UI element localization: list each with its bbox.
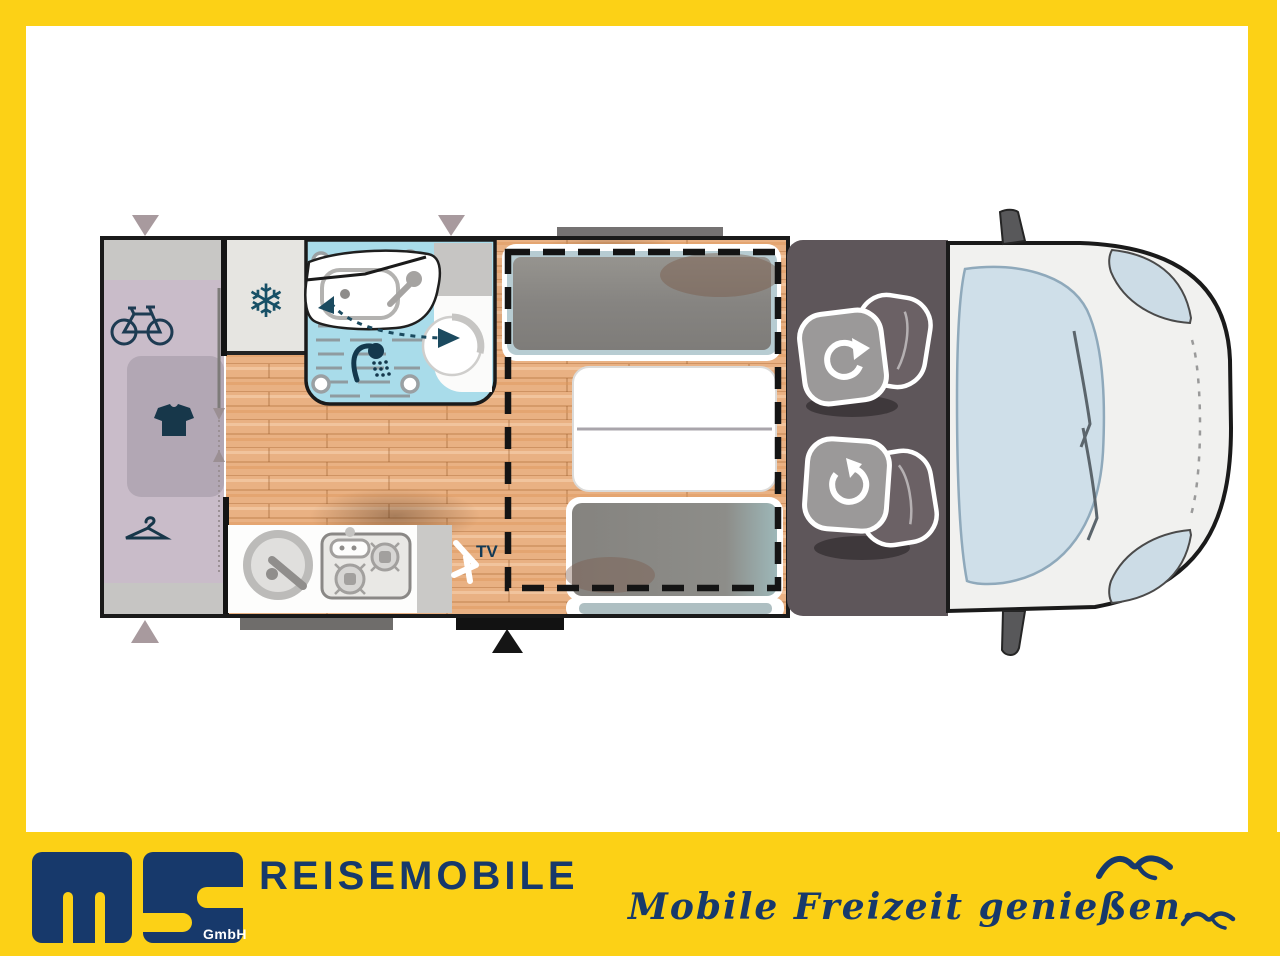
logo-shape	[197, 887, 243, 908]
seagull-icon-large	[1095, 848, 1175, 890]
mirror-icon	[1002, 611, 1025, 655]
bench-seat-front	[502, 244, 781, 361]
logo-shape	[63, 892, 73, 943]
bathroom	[305, 240, 495, 404]
kitchen-step	[240, 616, 393, 630]
vehicle-front	[948, 210, 1231, 655]
fridge: ❄	[227, 240, 306, 355]
rear-garage	[104, 240, 229, 615]
seagull-icon-small	[1180, 906, 1236, 936]
motorhome-floorplan: ❄	[0, 0, 1280, 959]
toilet-icon	[423, 317, 481, 375]
company-title: REISEMOBILE	[259, 856, 579, 896]
logo-gmbh-label: GmbH	[203, 926, 247, 942]
garage-wall-top	[221, 240, 227, 356]
bathroom-cabinet	[434, 243, 492, 296]
tv-label: TV	[476, 542, 498, 561]
sink-icon	[305, 251, 440, 329]
logo-shape	[95, 892, 105, 943]
logo-shape	[143, 913, 192, 932]
kitchen-sink-icon	[247, 534, 309, 596]
kitchen	[228, 525, 452, 613]
page: ❄	[0, 0, 1280, 959]
mirror-icon	[1000, 210, 1025, 244]
snowflake-icon: ❄	[247, 274, 286, 328]
dinette-table	[573, 367, 776, 491]
stove-icon	[322, 527, 410, 598]
cab	[787, 240, 948, 616]
entry-step	[456, 616, 564, 630]
slogan-script: Mobile Freizeit genießen.	[628, 886, 1196, 928]
ms-logo-m	[32, 852, 132, 943]
